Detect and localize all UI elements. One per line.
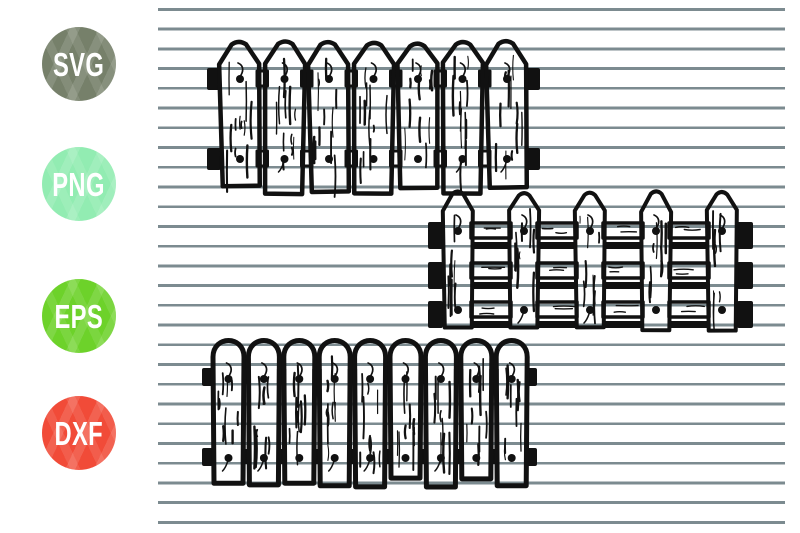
picket-fence-illustrations: [0, 0, 800, 533]
format-badge-eps-label: EPS: [55, 300, 104, 333]
pointed-picket-fence-spaced: [428, 191, 753, 330]
clipart-product-image: SVG PNG EPS DXF: [0, 0, 800, 533]
round-picket-fence-tight: [202, 341, 537, 488]
format-badge-dxf-label: DXF: [55, 417, 104, 450]
format-badge-svg-label: SVG: [53, 48, 104, 81]
pointed-picket-fence-tight: [207, 41, 540, 197]
format-badge-png-label: PNG: [53, 168, 106, 201]
